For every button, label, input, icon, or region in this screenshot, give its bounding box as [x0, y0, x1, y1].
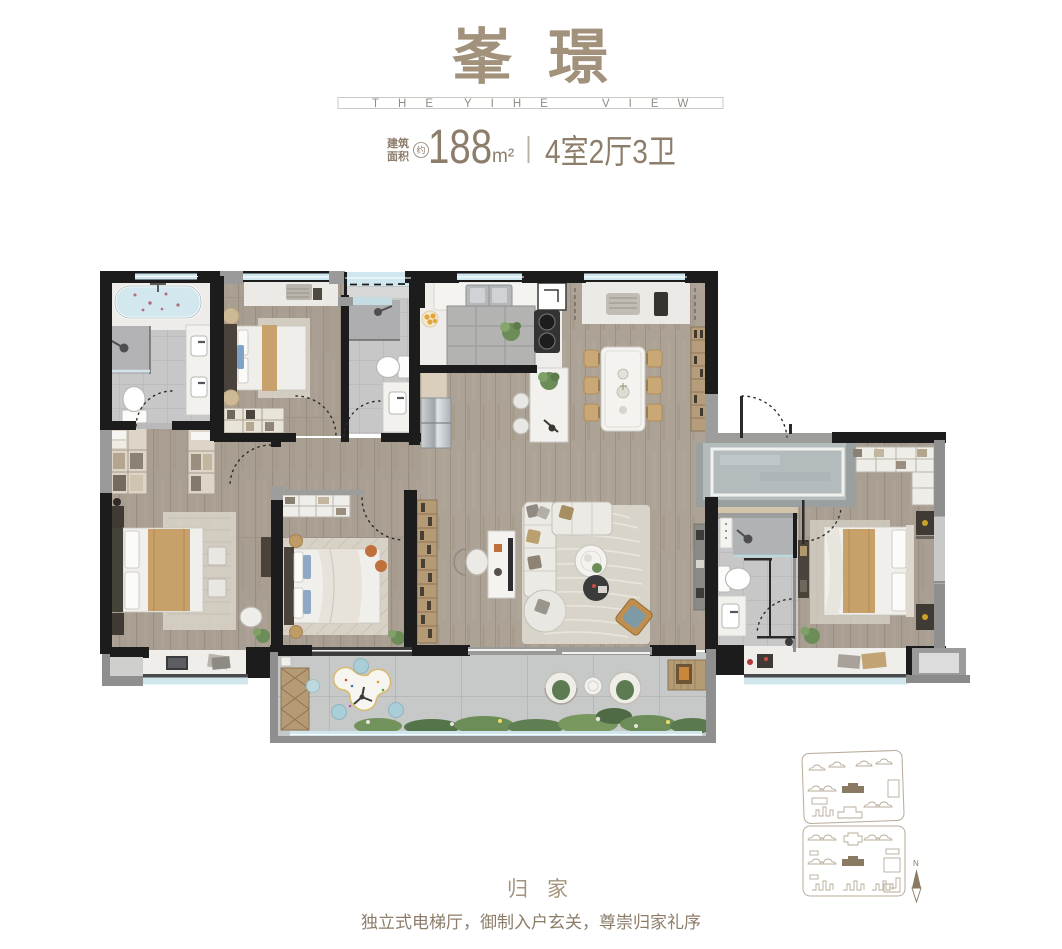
svg-text:归家: 归家: [507, 878, 587, 901]
svg-text:建筑: 建筑: [387, 136, 409, 150]
svg-text:YIHE: YIHE: [464, 98, 567, 110]
svg-text:面积: 面积: [387, 149, 409, 163]
svg-text:独立式电梯厅，御制入户玄关，尊崇归家礼序: 独立式电梯厅，御制入户玄关，尊崇归家礼序: [361, 913, 701, 932]
svg-text:188: 188: [428, 121, 492, 174]
svg-text:m²: m²: [492, 146, 514, 167]
svg-text:THE: THE: [372, 98, 452, 110]
svg-text:约: 约: [416, 145, 425, 156]
svg-text:4室2厅3卫: 4室2厅3卫: [545, 134, 676, 171]
svg-text:VIEW: VIEW: [602, 98, 707, 110]
svg-text:峯璟: 峯璟: [452, 24, 644, 91]
svg-text:N: N: [913, 859, 919, 868]
